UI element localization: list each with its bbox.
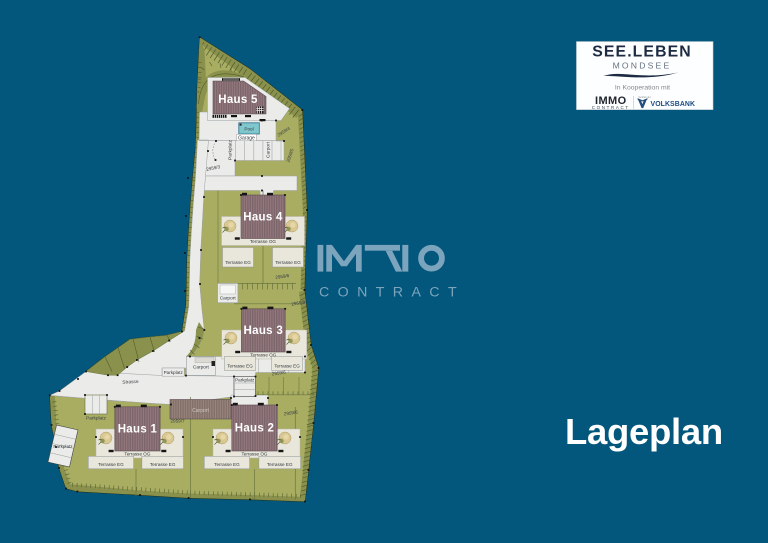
svg-text:Parkplatz: Parkplatz: [235, 378, 255, 383]
svg-text:Garage: Garage: [238, 135, 255, 141]
svg-text:Parkplatz: Parkplatz: [86, 416, 107, 422]
svg-text:SEE.LEBEN: SEE.LEBEN: [592, 43, 691, 60]
svg-text:Terrasse OG: Terrasse OG: [250, 239, 276, 244]
svg-text:Carport: Carport: [220, 296, 237, 302]
svg-text:MONDSEE: MONDSEE: [613, 60, 672, 70]
svg-text:Terrasse OG: Terrasse OG: [124, 452, 150, 457]
svg-text:Terrasse EG: Terrasse EG: [267, 462, 293, 467]
svg-text:Carport: Carport: [193, 365, 210, 371]
svg-text:Strasse: Strasse: [122, 379, 139, 386]
svg-text:Lageplan: Lageplan: [565, 411, 723, 452]
svg-text:2959/7: 2959/7: [170, 419, 184, 424]
svg-text:Terrasse EG: Terrasse EG: [214, 462, 240, 467]
svg-text:Terrasse EG: Terrasse EG: [275, 260, 301, 265]
svg-text:Haus 2: Haus 2: [235, 423, 275, 435]
svg-text:Terrasse EG: Terrasse EG: [150, 462, 176, 467]
svg-text:Parkplatz: Parkplatz: [164, 370, 184, 375]
svg-text:Parkplatz: Parkplatz: [228, 139, 234, 160]
svg-text:Terrasse EG: Terrasse EG: [98, 462, 124, 467]
svg-text:Pool: Pool: [244, 126, 253, 131]
svg-text:CONTRACT: CONTRACT: [592, 105, 630, 110]
svg-text:Haus 3: Haus 3: [244, 325, 284, 337]
svg-text:Carport: Carport: [266, 141, 272, 158]
svg-text:Haus 4: Haus 4: [243, 211, 283, 223]
svg-text:Terrasse EG: Terrasse EG: [274, 364, 300, 369]
svg-text:Carport: Carport: [192, 408, 209, 414]
svg-text:Haus 5: Haus 5: [218, 94, 258, 106]
svg-text:Haus 1: Haus 1: [118, 423, 158, 435]
svg-text:VOLKSBANK: VOLKSBANK: [651, 101, 696, 108]
svg-text:CONTRACT: CONTRACT: [319, 285, 465, 301]
svg-text:Terrasse EG: Terrasse EG: [225, 260, 251, 265]
svg-text:Terrasse OG: Terrasse OG: [241, 452, 267, 457]
svg-text:In Kooperation mit: In Kooperation mit: [615, 85, 670, 92]
svg-text:Terrasse EG: Terrasse EG: [227, 364, 253, 369]
svg-text:Vertrieb der: Vertrieb der: [638, 96, 651, 99]
